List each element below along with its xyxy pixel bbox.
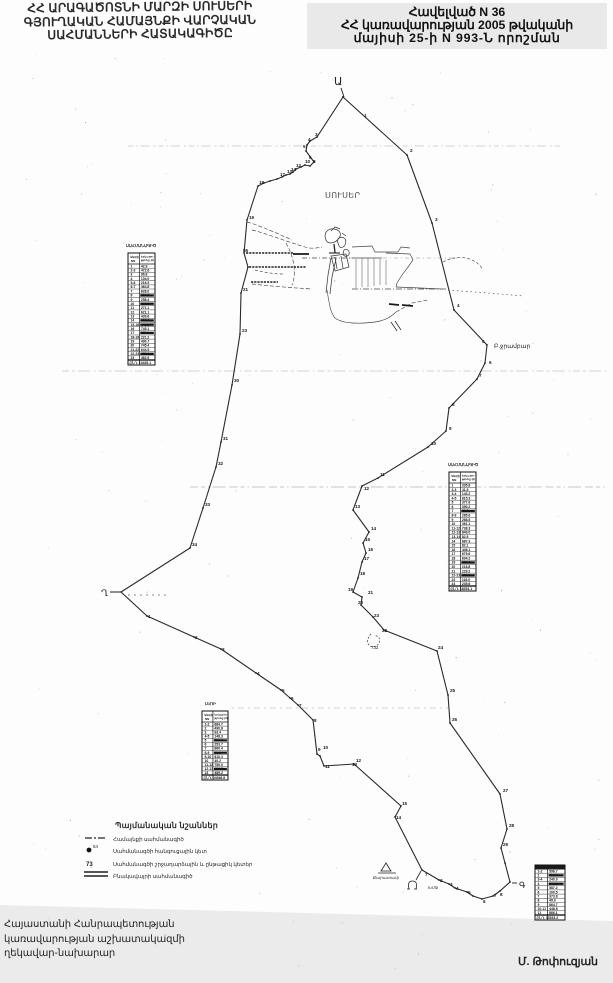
svg-text:ԸՆԴ. 18253.1: ԸՆԴ. 18253.1 bbox=[451, 587, 473, 591]
svg-text:ԽՄՋ: ԽՄՋ bbox=[428, 885, 438, 890]
svg-text:Քարատափ: Քարատափ bbox=[373, 875, 399, 880]
svg-text:25: 25 bbox=[450, 688, 456, 693]
svg-text:NN: NN bbox=[131, 259, 135, 263]
svg-text:14: 14 bbox=[291, 167, 297, 172]
svg-text:9: 9 bbox=[318, 747, 321, 752]
svg-text:Ղ: Ղ bbox=[101, 588, 108, 598]
svg-text:Բ.ջրամբար: Բ.ջրամբար bbox=[494, 343, 531, 350]
svg-text:7: 7 bbox=[494, 893, 497, 898]
svg-text:11: 11 bbox=[325, 764, 330, 769]
svg-text:10: 10 bbox=[431, 441, 437, 446]
svg-text:5: 5 bbox=[282, 688, 285, 693]
svg-text:Սահմանագծի հանգուցային կետ: Սահմանագծի հանգուցային կետ bbox=[113, 849, 207, 855]
svg-text:1: 1 bbox=[148, 614, 151, 619]
svg-text:16: 16 bbox=[368, 547, 374, 552]
svg-text:23: 23 bbox=[242, 328, 248, 333]
svg-text:7: 7 bbox=[299, 703, 302, 708]
svg-text:4: 4 bbox=[308, 137, 311, 142]
svg-text:1: 1 bbox=[364, 113, 367, 118]
svg-text:22: 22 bbox=[382, 628, 388, 633]
svg-text:ԸՆԴ. 24946.8: ԸՆԴ. 24946.8 bbox=[204, 776, 226, 780]
svg-text:2: 2 bbox=[410, 148, 413, 153]
svg-text:30: 30 bbox=[234, 378, 240, 383]
svg-text:Երկարու-: Երկարու- bbox=[462, 474, 476, 478]
svg-text:33: 33 bbox=[205, 502, 211, 507]
svg-text:13: 13 bbox=[355, 504, 361, 509]
svg-text:Համայնքի սահմանագիծ: Համայնքի սահմանագիծ bbox=[113, 837, 184, 843]
svg-text:Գ: Գ bbox=[519, 880, 526, 890]
svg-text:թյունը (մ): թյունը (մ) bbox=[141, 258, 154, 262]
svg-text:12: 12 bbox=[296, 163, 302, 168]
svg-text:8: 8 bbox=[314, 718, 317, 723]
svg-text:NN: NN bbox=[452, 478, 456, 482]
svg-text:2: 2 bbox=[195, 635, 198, 640]
svg-text:4: 4 bbox=[457, 303, 460, 308]
svg-text:11: 11 bbox=[380, 472, 385, 477]
svg-text:12: 12 bbox=[364, 486, 370, 491]
svg-text:Պայմանական նշաններ: Պայմանական նշաններ bbox=[115, 821, 218, 830]
svg-text:18: 18 bbox=[360, 571, 366, 576]
svg-text:8: 8 bbox=[500, 892, 503, 897]
svg-text:21: 21 bbox=[243, 287, 249, 292]
svg-text:3: 3 bbox=[315, 132, 318, 137]
svg-text:6: 6 bbox=[309, 155, 312, 160]
svg-text:2: 2 bbox=[440, 878, 443, 883]
svg-text:23: 23 bbox=[374, 613, 380, 618]
svg-text:32: 32 bbox=[218, 461, 224, 466]
svg-text:3: 3 bbox=[450, 882, 453, 887]
svg-text:թյունը (մ): թյունը (մ) bbox=[462, 477, 475, 481]
svg-text:21: 21 bbox=[368, 590, 374, 595]
svg-text:17: 17 bbox=[280, 172, 286, 177]
svg-text:թյունը (մ): թյունը (մ) bbox=[214, 716, 227, 720]
svg-text:29: 29 bbox=[503, 842, 509, 847]
svg-text:732: 732 bbox=[371, 645, 379, 650]
svg-text:3: 3 bbox=[222, 647, 225, 652]
svg-text:6: 6 bbox=[291, 696, 294, 701]
svg-text:54: 54 bbox=[93, 844, 99, 849]
svg-text:14: 14 bbox=[396, 815, 402, 820]
svg-text:ՍԱՀՄԱՆԱԳԻԾ: ՍԱՀՄԱՆԱԳԻԾ bbox=[448, 462, 479, 467]
svg-text:20: 20 bbox=[358, 600, 364, 605]
svg-text:28: 28 bbox=[509, 823, 515, 828]
svg-text:17: 17 bbox=[364, 556, 370, 561]
svg-text:Երկարու-: Երկարու- bbox=[141, 255, 155, 259]
svg-text:5: 5 bbox=[303, 144, 306, 149]
svg-text:15: 15 bbox=[365, 537, 371, 542]
svg-text:8: 8 bbox=[452, 402, 455, 407]
svg-text:34: 34 bbox=[192, 542, 198, 547]
svg-text:10: 10 bbox=[323, 745, 329, 750]
svg-text:27: 27 bbox=[503, 788, 509, 793]
svg-text:14: 14 bbox=[371, 526, 377, 531]
svg-text:24: 24 bbox=[438, 645, 444, 650]
svg-text:31: 31 bbox=[223, 436, 229, 441]
svg-text:6: 6 bbox=[489, 360, 492, 365]
svg-text:Բնակավայրի սահմանագիծ: Բնակավայրի սահմանագիծ bbox=[113, 874, 192, 880]
svg-text:ԸՆԴ. 13435.1: ԸՆԴ. 13435.1 bbox=[130, 361, 152, 365]
svg-text:Երկարու-: Երկարու- bbox=[214, 713, 228, 717]
svg-text:19: 19 bbox=[348, 587, 354, 592]
svg-text:4: 4 bbox=[257, 671, 260, 676]
svg-text:26: 26 bbox=[452, 717, 458, 722]
svg-text:ԼԵՌԻ: ԼԵՌԻ bbox=[205, 701, 216, 706]
svg-text:73: 73 bbox=[86, 862, 93, 868]
svg-text:13: 13 bbox=[352, 762, 358, 767]
svg-text:ՍՈՒՍԵՐ: ՍՈՒՍԵՐ bbox=[325, 191, 361, 200]
svg-text:19: 19 bbox=[249, 215, 255, 220]
svg-text:ՍԱՀՄԱՆԱԳԻԾ: ՍԱՀՄԱՆԱԳԻԾ bbox=[126, 243, 157, 248]
svg-text:Սահմանագծի շրջադարձային և ընթա: Սահմանագծի շրջադարձային և ընթացիկ կետեր bbox=[113, 862, 252, 868]
svg-text:NN: NN bbox=[205, 717, 209, 721]
svg-text:5: 5 bbox=[468, 890, 471, 895]
svg-text:3: 3 bbox=[435, 217, 438, 222]
svg-text:9: 9 bbox=[449, 426, 452, 431]
svg-text:7: 7 bbox=[479, 373, 482, 378]
svg-text:ԸՆԴ. 13533.2: ԸՆԴ. 13533.2 bbox=[537, 916, 559, 920]
svg-text:6: 6 bbox=[483, 899, 486, 904]
svg-text:5: 5 bbox=[482, 339, 485, 344]
svg-text:15: 15 bbox=[402, 801, 408, 806]
svg-text:Ա: Ա bbox=[334, 76, 342, 88]
svg-text:4: 4 bbox=[456, 886, 459, 891]
svg-text:7: 7 bbox=[425, 872, 428, 877]
svg-text:18: 18 bbox=[259, 180, 265, 185]
svg-text:8: 8 bbox=[313, 159, 316, 164]
